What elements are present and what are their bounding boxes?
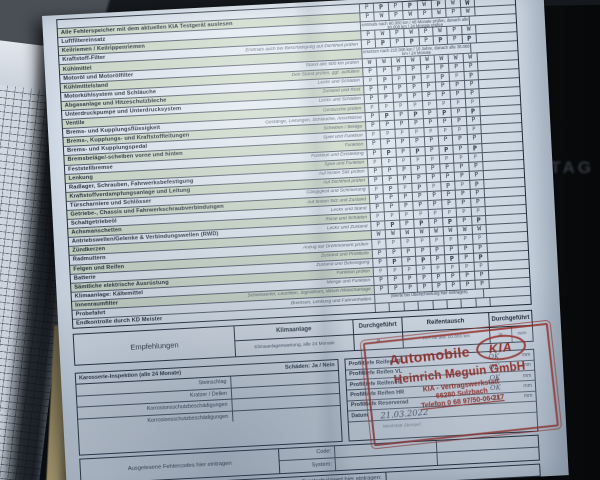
schedule-cell: P	[388, 284, 403, 293]
schedule-cell: P	[387, 266, 402, 275]
schedule-cell: P	[413, 210, 428, 219]
schedule-cell: P	[471, 216, 486, 225]
schedule-cell: P	[434, 63, 449, 72]
item-note: Spiel und Funktion	[323, 133, 363, 140]
item-label: Probefahrt	[76, 310, 106, 318]
schedule-cell: P	[468, 171, 483, 180]
item-label: Zündkerzen	[72, 246, 105, 254]
schedule-cell: P	[386, 239, 401, 248]
service-checklist-page: PPPPWPWWAlle Fehlerspeicher mit dem aktu…	[42, 0, 569, 480]
schedule-cell: P	[382, 166, 397, 175]
schedule-cell: P	[377, 66, 392, 75]
schedule-cell: P	[466, 116, 481, 125]
schedule-cell: P	[435, 82, 450, 91]
schedule-cell: P	[456, 217, 471, 226]
schedule-cell: P	[412, 192, 427, 201]
schedule-cell: P	[402, 1, 417, 10]
schedule-cell: P	[372, 258, 387, 267]
item-label: Kühlmittel	[63, 65, 92, 72]
schedule-cell: P	[411, 183, 426, 192]
schedule-cell: P	[373, 3, 388, 12]
schedule-cell: P	[454, 172, 469, 181]
schedule-cell: P	[383, 185, 398, 194]
schedule-cell: P	[413, 219, 428, 228]
schedule-cell: W	[414, 228, 429, 237]
item-label: Luftfiltereinsatz	[61, 37, 105, 45]
schedule-cell: P	[407, 92, 422, 101]
schedule-cell: P	[444, 254, 459, 263]
item-note: Lecks und Schäden	[319, 97, 361, 104]
schedule-cell: P	[421, 82, 436, 91]
damage-label: Schäden: Ja / Nein	[285, 362, 335, 371]
schedule-cell: P	[416, 265, 431, 274]
schedule-cell: P	[467, 135, 482, 144]
schedule-cell: P	[418, 37, 433, 46]
kia-logo: KIA	[474, 332, 526, 362]
schedule-cell: P	[424, 155, 439, 164]
schedule-cell: P	[406, 74, 421, 83]
schedule-cell: W	[459, 0, 474, 7]
schedule-cell: P	[410, 156, 425, 165]
schedule-cell: P	[391, 66, 406, 75]
schedule-cell: P	[397, 175, 412, 184]
schedule-cell: P	[400, 247, 415, 256]
schedule-cell: W	[462, 53, 477, 62]
schedule-cell: P	[396, 166, 411, 175]
schedule-cell: P	[409, 129, 424, 138]
schedule-cell: P	[408, 119, 423, 128]
item-note: Scheiben / Beläge	[323, 124, 362, 131]
schedule-cell: P	[370, 213, 385, 222]
schedule-cell: P	[389, 38, 404, 47]
item-note: Spiel und Funktion	[324, 160, 364, 167]
climate-column: Klimaanlage Klimaanlagenwartung, alle 24…	[234, 320, 354, 356]
item-label: Feststellbremse	[68, 164, 113, 172]
schedule-cell: P	[405, 65, 420, 74]
schedule-cell: P	[433, 36, 448, 45]
item-label: Felgen und Reifen	[73, 264, 124, 273]
schedule-cell: P	[368, 185, 383, 194]
schedule-cell: P	[443, 236, 458, 245]
schedule-cell: P	[364, 94, 379, 103]
schedule-cell: P	[470, 207, 485, 216]
schedule-cell: P	[367, 167, 382, 176]
schedule-cell: P	[439, 154, 454, 163]
schedule-cell: P	[402, 284, 417, 293]
schedule-cell: P	[399, 220, 414, 229]
schedule-cell: P	[469, 189, 484, 198]
schedule-cell: P	[444, 245, 459, 254]
schedule-cell: P	[368, 176, 383, 185]
schedule-cell: P	[359, 13, 374, 22]
schedule-cell: P	[407, 101, 422, 110]
item-note: Menge und Funktion	[327, 279, 371, 286]
empty-column	[490, 296, 531, 306]
schedule-cell: P	[377, 85, 392, 94]
schedule-cell: P	[438, 136, 453, 145]
schedule-cell: P	[459, 272, 474, 281]
schedule-cell: W	[445, 0, 460, 8]
schedule-cell: P	[456, 199, 471, 208]
item-note: Geräusche prüfen	[323, 106, 362, 113]
schedule-cell: P	[417, 283, 432, 292]
schedule-cell: P	[399, 211, 414, 220]
item-note: Lecks und Stand	[331, 206, 367, 213]
schedule-cell: P	[380, 130, 395, 139]
schedule-cell: W	[371, 231, 386, 240]
item-note: Auf Dichtheit prüfen	[323, 179, 365, 186]
photo-scene: TAG PPPPWPWWAlle Fehlerspeicher mit dem …	[0, 0, 600, 480]
item-note: Lecks und Schäden	[318, 79, 360, 86]
schedule-cell: P	[362, 67, 377, 76]
schedule-cell: P	[410, 147, 425, 156]
schedule-cell: P	[449, 72, 464, 81]
schedule-cell: W	[460, 7, 475, 16]
schedule-cell: P	[428, 219, 443, 228]
schedule-cell: P	[442, 209, 457, 218]
schedule-cell: P	[406, 83, 421, 92]
schedule-cell: P	[379, 121, 394, 130]
schedule-cell: P	[459, 262, 474, 271]
schedule-cell: P	[423, 137, 438, 146]
schedule-cell: P	[454, 163, 469, 172]
schedule-cell: P	[411, 174, 426, 183]
schedule-cell: P	[424, 146, 439, 155]
schedule-cell: P	[384, 203, 399, 212]
schedule-cell: P	[411, 165, 426, 174]
schedule-cell: P	[453, 144, 468, 153]
schedule-cell: P	[427, 200, 442, 209]
schedule-cell: P	[426, 182, 441, 191]
schedule-cell	[461, 299, 476, 308]
item-label: Batterie	[74, 274, 96, 281]
schedule-cell: W	[416, 1, 431, 10]
schedule-cell: P	[437, 127, 452, 136]
schedule-cell: W	[375, 30, 390, 39]
schedule-cell: P	[363, 85, 378, 94]
schedule-cell: W	[457, 226, 472, 235]
schedule-cell: W	[403, 29, 418, 38]
schedule-cell: P	[461, 35, 476, 44]
item-note: Lecks und Zustand	[327, 224, 368, 231]
schedule-cell: P	[450, 90, 465, 99]
schedule-cell: W	[402, 10, 417, 19]
schedule-cell: W	[376, 57, 391, 66]
schedule-cell: P	[425, 173, 440, 182]
schedule-cell: W	[374, 12, 389, 21]
schedule-cell: W	[419, 55, 434, 64]
schedule-cell: P	[365, 131, 380, 140]
schedule-cell: P	[451, 108, 466, 117]
schedule-cell: P	[418, 28, 433, 37]
schedule-cell: P	[421, 91, 436, 100]
item-label: Kühlmittelstand	[64, 82, 109, 90]
schedule-cell: P	[384, 212, 399, 221]
schedule-cell: P	[444, 263, 459, 272]
schedule-cell: P	[467, 144, 482, 153]
schedule-cell: P	[452, 126, 467, 135]
schedule-cell: P	[375, 39, 390, 48]
schedule-cell: P	[400, 238, 415, 247]
item-label: Lenkung	[68, 174, 93, 181]
schedule-cell: P	[441, 191, 456, 200]
schedule-cell: P	[395, 138, 410, 147]
schedule-cell: P	[373, 276, 388, 285]
item-label: Kraftstoff-Filter	[62, 55, 105, 63]
schedule-cell: P	[392, 84, 407, 93]
schedule-cell: P	[401, 266, 416, 275]
schedule-cell: P	[414, 238, 429, 247]
schedule-cell: W	[399, 229, 414, 238]
schedule-cell: P	[372, 249, 387, 258]
schedule-cell: P	[429, 237, 444, 246]
schedule-cell: P	[379, 112, 394, 121]
schedule-cell: P	[466, 126, 481, 135]
body-inspection-table: Karosserie-Inspektion (alle 24 Monate) S…	[75, 359, 343, 455]
schedule-cell: P	[364, 104, 379, 113]
schedule-cell: P	[401, 256, 416, 265]
schedule-cell: P	[371, 240, 386, 249]
schedule-cell: P	[450, 99, 465, 108]
schedule-cell: P	[440, 172, 455, 181]
schedule-cell: P	[374, 285, 389, 294]
system-label: System:	[280, 458, 337, 472]
schedule-cell: P	[423, 128, 438, 137]
schedule-cell: P	[416, 274, 431, 283]
schedule-cell: P	[422, 110, 437, 119]
schedule-cell: P	[385, 221, 400, 230]
schedule-cell: P	[367, 158, 382, 167]
schedule-cell: P	[425, 164, 440, 173]
schedule-cell: P	[422, 101, 437, 110]
schedule-cell	[475, 298, 490, 307]
item-label: Achsmanschetten	[71, 227, 122, 236]
schedule-cell: P	[447, 35, 462, 44]
schedule-cell: P	[397, 184, 412, 193]
schedule-cell: W	[431, 9, 446, 18]
schedule-cell: P	[426, 191, 441, 200]
schedule-cell: P	[420, 73, 435, 82]
item-note: Stand alle 500 km prüfen	[305, 61, 359, 69]
schedule-cell: P	[395, 147, 410, 156]
schedule-cell: P	[431, 273, 446, 282]
schedule-cell: P	[391, 75, 406, 84]
item-note: Zustand und Profiltiefe	[321, 251, 369, 259]
schedule-cell: P	[408, 110, 423, 119]
schedule-cell: P	[464, 80, 479, 89]
schedule-cell: P	[446, 8, 461, 17]
schedule-cell: P	[437, 118, 452, 127]
schedule-cell: P	[386, 248, 401, 257]
schedule-cell: P	[393, 111, 408, 120]
schedule-cell	[418, 301, 433, 310]
schedule-cell: P	[415, 256, 430, 265]
item-note: Risse und Schäden	[325, 215, 367, 222]
schedule-cell: P	[441, 200, 456, 209]
schedule-cell: P	[378, 94, 393, 103]
schedule-cell: P	[393, 102, 408, 111]
schedule-cell: P	[361, 40, 376, 49]
schedule-cell: P	[445, 281, 460, 290]
schedule-cell	[446, 300, 461, 309]
schedule-cell: P	[394, 129, 409, 138]
schedule-cell: W	[471, 225, 486, 234]
schedule-cell: P	[438, 145, 453, 154]
item-label: Ventile	[66, 120, 85, 127]
schedule-cell: P	[431, 0, 446, 9]
item-note: Funktion	[345, 142, 364, 148]
schedule-cell: P	[420, 64, 435, 73]
schedule-cell: P	[430, 255, 445, 264]
schedule-cell: W	[362, 58, 377, 67]
schedule-cell: P	[404, 38, 419, 47]
schedule-cell: P	[409, 138, 424, 147]
item-note: Zustand und Befestigung	[316, 260, 370, 268]
schedule-cell: W	[385, 230, 400, 239]
schedule-cell: P	[388, 2, 403, 11]
schedule-cell: P	[445, 272, 460, 281]
schedule-cell: P	[366, 140, 381, 149]
schedule-cell: W	[405, 56, 420, 65]
schedule-cell: P	[365, 113, 380, 122]
schedule-cell: P	[474, 280, 489, 289]
schedule-cell: P	[470, 198, 485, 207]
schedule-cell: P	[381, 148, 396, 157]
schedule-cell: P	[365, 122, 380, 131]
schedule-cell: P	[440, 182, 455, 191]
schedule-cell: P	[369, 203, 384, 212]
item-note: Auf festen Sitz prüfen	[319, 170, 365, 177]
schedule-cell: P	[463, 62, 478, 71]
schedule-cell: P	[474, 271, 489, 280]
schedule-cell: P	[402, 275, 417, 284]
schedule-cell: P	[398, 193, 413, 202]
schedule-cell: P	[442, 218, 457, 227]
schedule-cell: P	[387, 275, 402, 284]
schedule-cell: P	[451, 117, 466, 126]
schedule-cell: P	[394, 120, 409, 129]
schedule-cell: P	[446, 26, 461, 35]
schedule-cell: P	[472, 234, 487, 243]
item-note: Funktion prüfen	[336, 269, 370, 276]
schedule-cell: P	[463, 71, 478, 80]
schedule-cell: P	[473, 253, 488, 262]
item-note: Funktion und Einstellung	[311, 151, 364, 159]
schedule-cell: P	[415, 247, 430, 256]
item-label: Radmuttern	[73, 255, 106, 263]
schedule-cell: P	[387, 257, 402, 266]
schedule-cell: P	[381, 157, 396, 166]
schedule-cell: P	[436, 100, 451, 109]
schedule-cell: P	[383, 194, 398, 203]
schedule-cell: P	[360, 31, 375, 40]
schedule-cell: W	[434, 54, 449, 63]
schedule-cell: P	[398, 202, 413, 211]
schedule-cell: W	[461, 26, 476, 35]
schedule-cell	[432, 300, 447, 309]
schedule-cell: P	[434, 73, 449, 82]
schedule-cell: P	[458, 244, 473, 253]
schedule-cell: P	[449, 81, 464, 90]
schedule-cell: P	[469, 180, 484, 189]
schedule-cell: P	[373, 267, 388, 276]
schedule-cell: P	[439, 163, 454, 172]
stamp-automobile-text: Automobile	[388, 343, 470, 368]
schedule-cell: P	[431, 282, 446, 291]
schedule-cell: W	[428, 228, 443, 237]
schedule-cell: P	[448, 63, 463, 72]
schedule-cell: P	[455, 181, 470, 190]
schedule-cell: P	[435, 91, 450, 100]
schedule-cell: P	[472, 244, 487, 253]
schedule-cell: P	[430, 264, 445, 273]
schedule-cell: P	[457, 235, 472, 244]
schedule-cell	[375, 303, 390, 312]
item-note: Gängigkeit und Schmierung	[306, 188, 365, 196]
schedule-cell: P	[455, 190, 470, 199]
schedule-cell: P	[412, 201, 427, 210]
schedule-cell: P	[422, 119, 437, 128]
schedule-cell: P	[427, 210, 442, 219]
schedule-cell: P	[458, 253, 473, 262]
schedule-cell: P	[468, 153, 483, 162]
schedule-cell: P	[377, 76, 392, 85]
schedule-cell: P	[436, 109, 451, 118]
schedule-cell: P	[429, 246, 444, 255]
item-label: Innenraumfilter	[75, 300, 118, 308]
item-note: Auf festen Sitz und Zustand	[307, 197, 366, 205]
schedule-cell	[389, 303, 404, 312]
schedule-cell: P	[453, 154, 468, 163]
item-note: Zustand und Rost	[322, 88, 360, 95]
schedule-cell: P	[392, 93, 407, 102]
recommendations-label: Empfehlungen	[74, 327, 235, 365]
schedule-cell: P	[452, 135, 467, 144]
schedule-cell: P	[363, 76, 378, 85]
schedule-cell: P	[389, 29, 404, 38]
car-trim-badge-text: TAG	[550, 158, 594, 178]
schedule-cell: P	[456, 208, 471, 217]
dealer-stamp: Automobile KIA Heinrich Meguin GmbH KIA …	[363, 323, 559, 446]
schedule-cell: P	[396, 157, 411, 166]
schedule-cell: P	[378, 103, 393, 112]
schedule-cell: P	[369, 194, 384, 203]
schedule-cell: W	[432, 27, 447, 36]
schedule-cell: P	[359, 4, 374, 13]
schedule-cell: P	[465, 98, 480, 107]
schedule-cell: P	[380, 139, 395, 148]
schedule-cell: P	[468, 162, 483, 171]
schedule-cell: W	[443, 227, 458, 236]
checklist-table: PPPPWPWWAlle Fehlerspeicher mit dem aktu…	[56, 0, 532, 329]
schedule-cell: P	[370, 222, 385, 231]
schedule-cell: W	[390, 57, 405, 66]
schedule-cell: P	[464, 89, 479, 98]
schedule-cell: P	[465, 107, 480, 116]
item-label: Schaltgetriebeöl	[71, 218, 117, 226]
date-label: Datum	[351, 412, 368, 419]
schedule-cell: P	[473, 262, 488, 271]
schedule-cell: W	[448, 54, 463, 63]
schedule-cell: P	[366, 149, 381, 158]
schedule-cell: P	[460, 281, 475, 290]
schedule-cell: P	[388, 11, 403, 20]
schedule-cell: P	[382, 175, 397, 184]
schedule-cell	[403, 302, 418, 311]
schedule-cell: P	[417, 10, 432, 19]
